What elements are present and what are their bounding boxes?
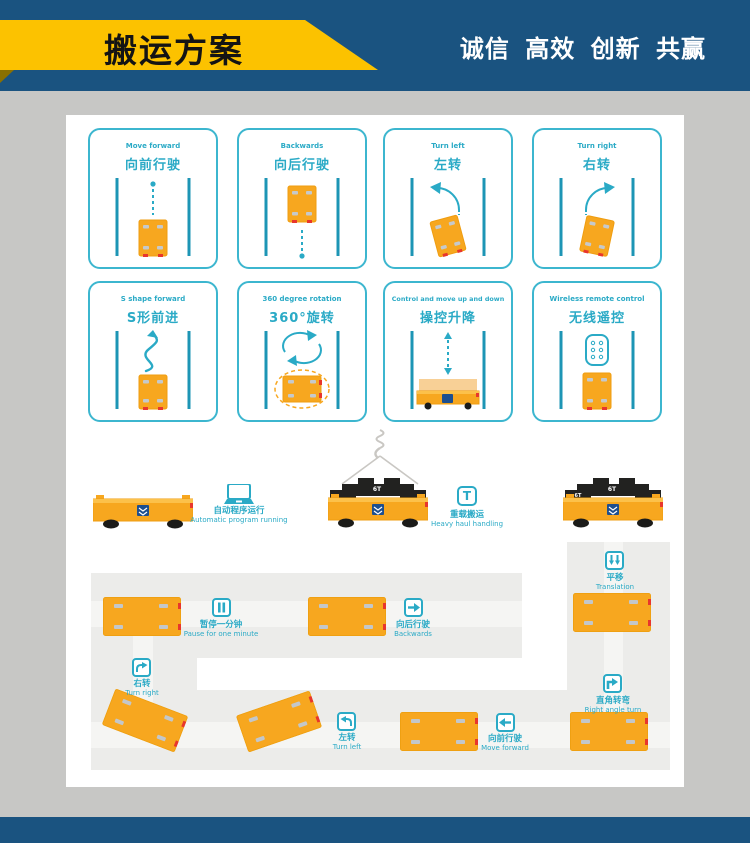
curve-right-arrow-icon xyxy=(586,188,608,210)
card-zh-label: 向前行驶 xyxy=(90,154,216,173)
card-zh-label: 无线遥控 xyxy=(534,307,660,326)
card-backwards: Backwards 向后行驶 xyxy=(237,128,367,269)
agv-cart-top-icon xyxy=(430,215,467,258)
ribbon-fold xyxy=(0,70,14,83)
move-forward-illustration xyxy=(90,174,216,268)
card-en-label: Turn right xyxy=(534,142,660,150)
card-en-label: 360 degree rotation xyxy=(239,295,365,303)
turn-right-label: 右转 Turn right xyxy=(94,679,190,698)
turn-left-label: 左转 Turn left xyxy=(299,733,395,752)
laptop-icon xyxy=(224,484,254,506)
header-slogan: 诚信 高效 创新 共赢 xyxy=(460,29,706,64)
agv-cart-top-icon xyxy=(579,215,614,257)
card-turn-left: Turn left 左转 xyxy=(383,128,513,269)
s-shape-illustration xyxy=(90,327,216,421)
header-bar: 搬运方案 诚信 高效 创新 共赢 xyxy=(0,0,750,91)
right-angle-turn-label: 直角转弯 Right angle turn xyxy=(565,696,661,715)
turn-left-icon xyxy=(337,712,356,731)
card-en-label: Turn left xyxy=(385,142,511,150)
right-angle-turn-icon xyxy=(603,674,622,693)
arrow-left-icon xyxy=(496,713,515,732)
backwards-illustration xyxy=(239,174,365,268)
s-curve-arrow-icon xyxy=(145,335,157,371)
curve-left-arrow-icon xyxy=(437,188,459,210)
svg-text:6T: 6T xyxy=(373,486,382,493)
heavy-haul-label: 重载搬运 Heavy haul handling xyxy=(417,510,517,529)
turn-right-illustration xyxy=(534,174,660,268)
map-cart xyxy=(103,597,181,636)
card-zh-label: 360°旋转 xyxy=(239,307,365,326)
agv-cart-top-icon xyxy=(288,186,316,223)
card-zh-label: 左转 xyxy=(385,154,511,173)
arrow-up-icon xyxy=(150,181,155,186)
card-en-label: Wireless remote control xyxy=(534,295,660,303)
turn-left-illustration xyxy=(385,174,511,268)
translation-label: 平移 Translation xyxy=(567,573,663,592)
card-zh-label: 向后行驶 xyxy=(239,154,365,173)
rotation-illustration xyxy=(239,327,365,421)
t-badge-icon: T xyxy=(457,486,477,506)
card-lift: Control and move up and down 操控升降 xyxy=(383,281,513,422)
svg-text:6T: 6T xyxy=(608,486,617,493)
arrow-right-icon xyxy=(404,598,423,617)
page-title: 搬运方案 xyxy=(58,24,290,72)
footer-bar xyxy=(0,817,750,843)
map-cart xyxy=(570,712,648,751)
agv-cart-side-lift-icon xyxy=(417,379,479,410)
agv-cart-loaded-icon: 6T xyxy=(328,476,428,530)
pause-label: 暂停一分钟 Pause for one minute xyxy=(173,620,269,639)
agv-cart-side-icon xyxy=(93,495,193,529)
turn-right-icon xyxy=(132,658,151,677)
agv-cart-top-icon xyxy=(283,376,322,402)
rotate-arrow-icon xyxy=(283,333,311,352)
move-forward-label: 向前行驶 Move forward xyxy=(457,734,553,753)
card-en-label: Control and move up and down xyxy=(385,295,511,303)
card-wireless-remote: Wireless remote control 无线遥控 xyxy=(532,281,662,422)
agv-cart-top-icon xyxy=(139,375,167,410)
translation-icon xyxy=(605,551,624,570)
auto-program-label: 自动程序运行 Automatic program running xyxy=(189,506,289,525)
card-en-label: Move forward xyxy=(90,142,216,150)
infographic-page: 搬运方案 诚信 高效 创新 共赢 Move forward 向前行驶 Backw… xyxy=(0,0,750,843)
card-zh-label: 操控升降 xyxy=(385,307,511,326)
card-en-label: S shape forward xyxy=(90,295,216,303)
card-zh-label: S形前进 xyxy=(90,307,216,326)
remote-illustration xyxy=(534,327,660,421)
agv-cart-top-icon xyxy=(583,373,611,410)
agv-cart-loaded-icon: 6T 6T xyxy=(563,476,663,530)
pause-icon xyxy=(212,598,231,617)
up-down-arrow-icon xyxy=(444,332,452,339)
card-360-rotation: 360 degree rotation 360°旋转 xyxy=(237,281,367,422)
agv-cart-top-icon xyxy=(139,220,167,257)
remote-control-icon xyxy=(586,335,608,365)
card-turn-right: Turn right 右转 xyxy=(532,128,662,269)
lift-illustration xyxy=(385,327,511,421)
card-s-shape: S shape forward S形前进 xyxy=(88,281,218,422)
card-en-label: Backwards xyxy=(239,142,365,150)
backwards-label: 向后行驶 Backwards xyxy=(365,620,461,639)
card-move-forward: Move forward 向前行驶 xyxy=(88,128,218,269)
card-zh-label: 右转 xyxy=(534,154,660,173)
map-cart xyxy=(573,593,651,632)
